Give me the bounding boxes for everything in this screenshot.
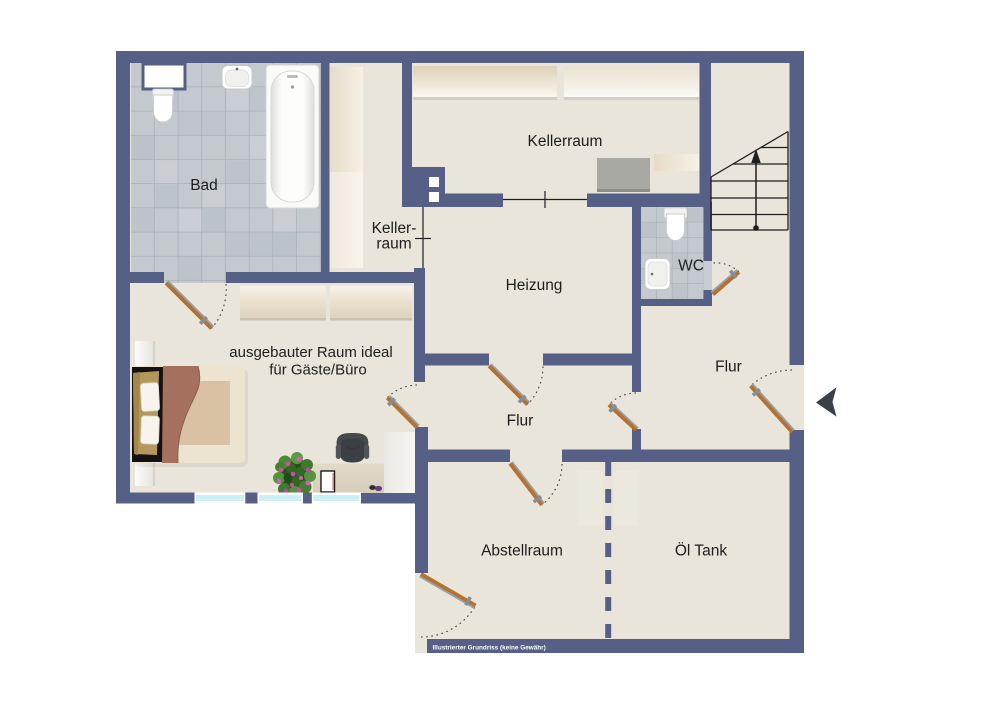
- svg-text:Öl Tank: Öl Tank: [675, 542, 728, 560]
- svg-text:Keller-: Keller-: [372, 220, 417, 237]
- svg-text:Flur: Flur: [715, 359, 742, 376]
- svg-text:Bad: Bad: [190, 177, 218, 194]
- svg-text:Kellerraum: Kellerraum: [528, 133, 603, 150]
- svg-text:Flur: Flur: [507, 413, 534, 430]
- svg-text:WC: WC: [678, 258, 704, 275]
- svg-text:ausgebauter Raum ideal: ausgebauter Raum ideal: [229, 344, 392, 361]
- svg-text:Heizung: Heizung: [506, 277, 563, 294]
- svg-text:für Gäste/Büro: für Gäste/Büro: [269, 362, 367, 379]
- svg-text:raum: raum: [376, 236, 411, 253]
- svg-text:Abstellraum: Abstellraum: [481, 543, 563, 560]
- svg-text:Illustrierter Grundriss (keine: Illustrierter Grundriss (keine Gewähr): [433, 645, 546, 652]
